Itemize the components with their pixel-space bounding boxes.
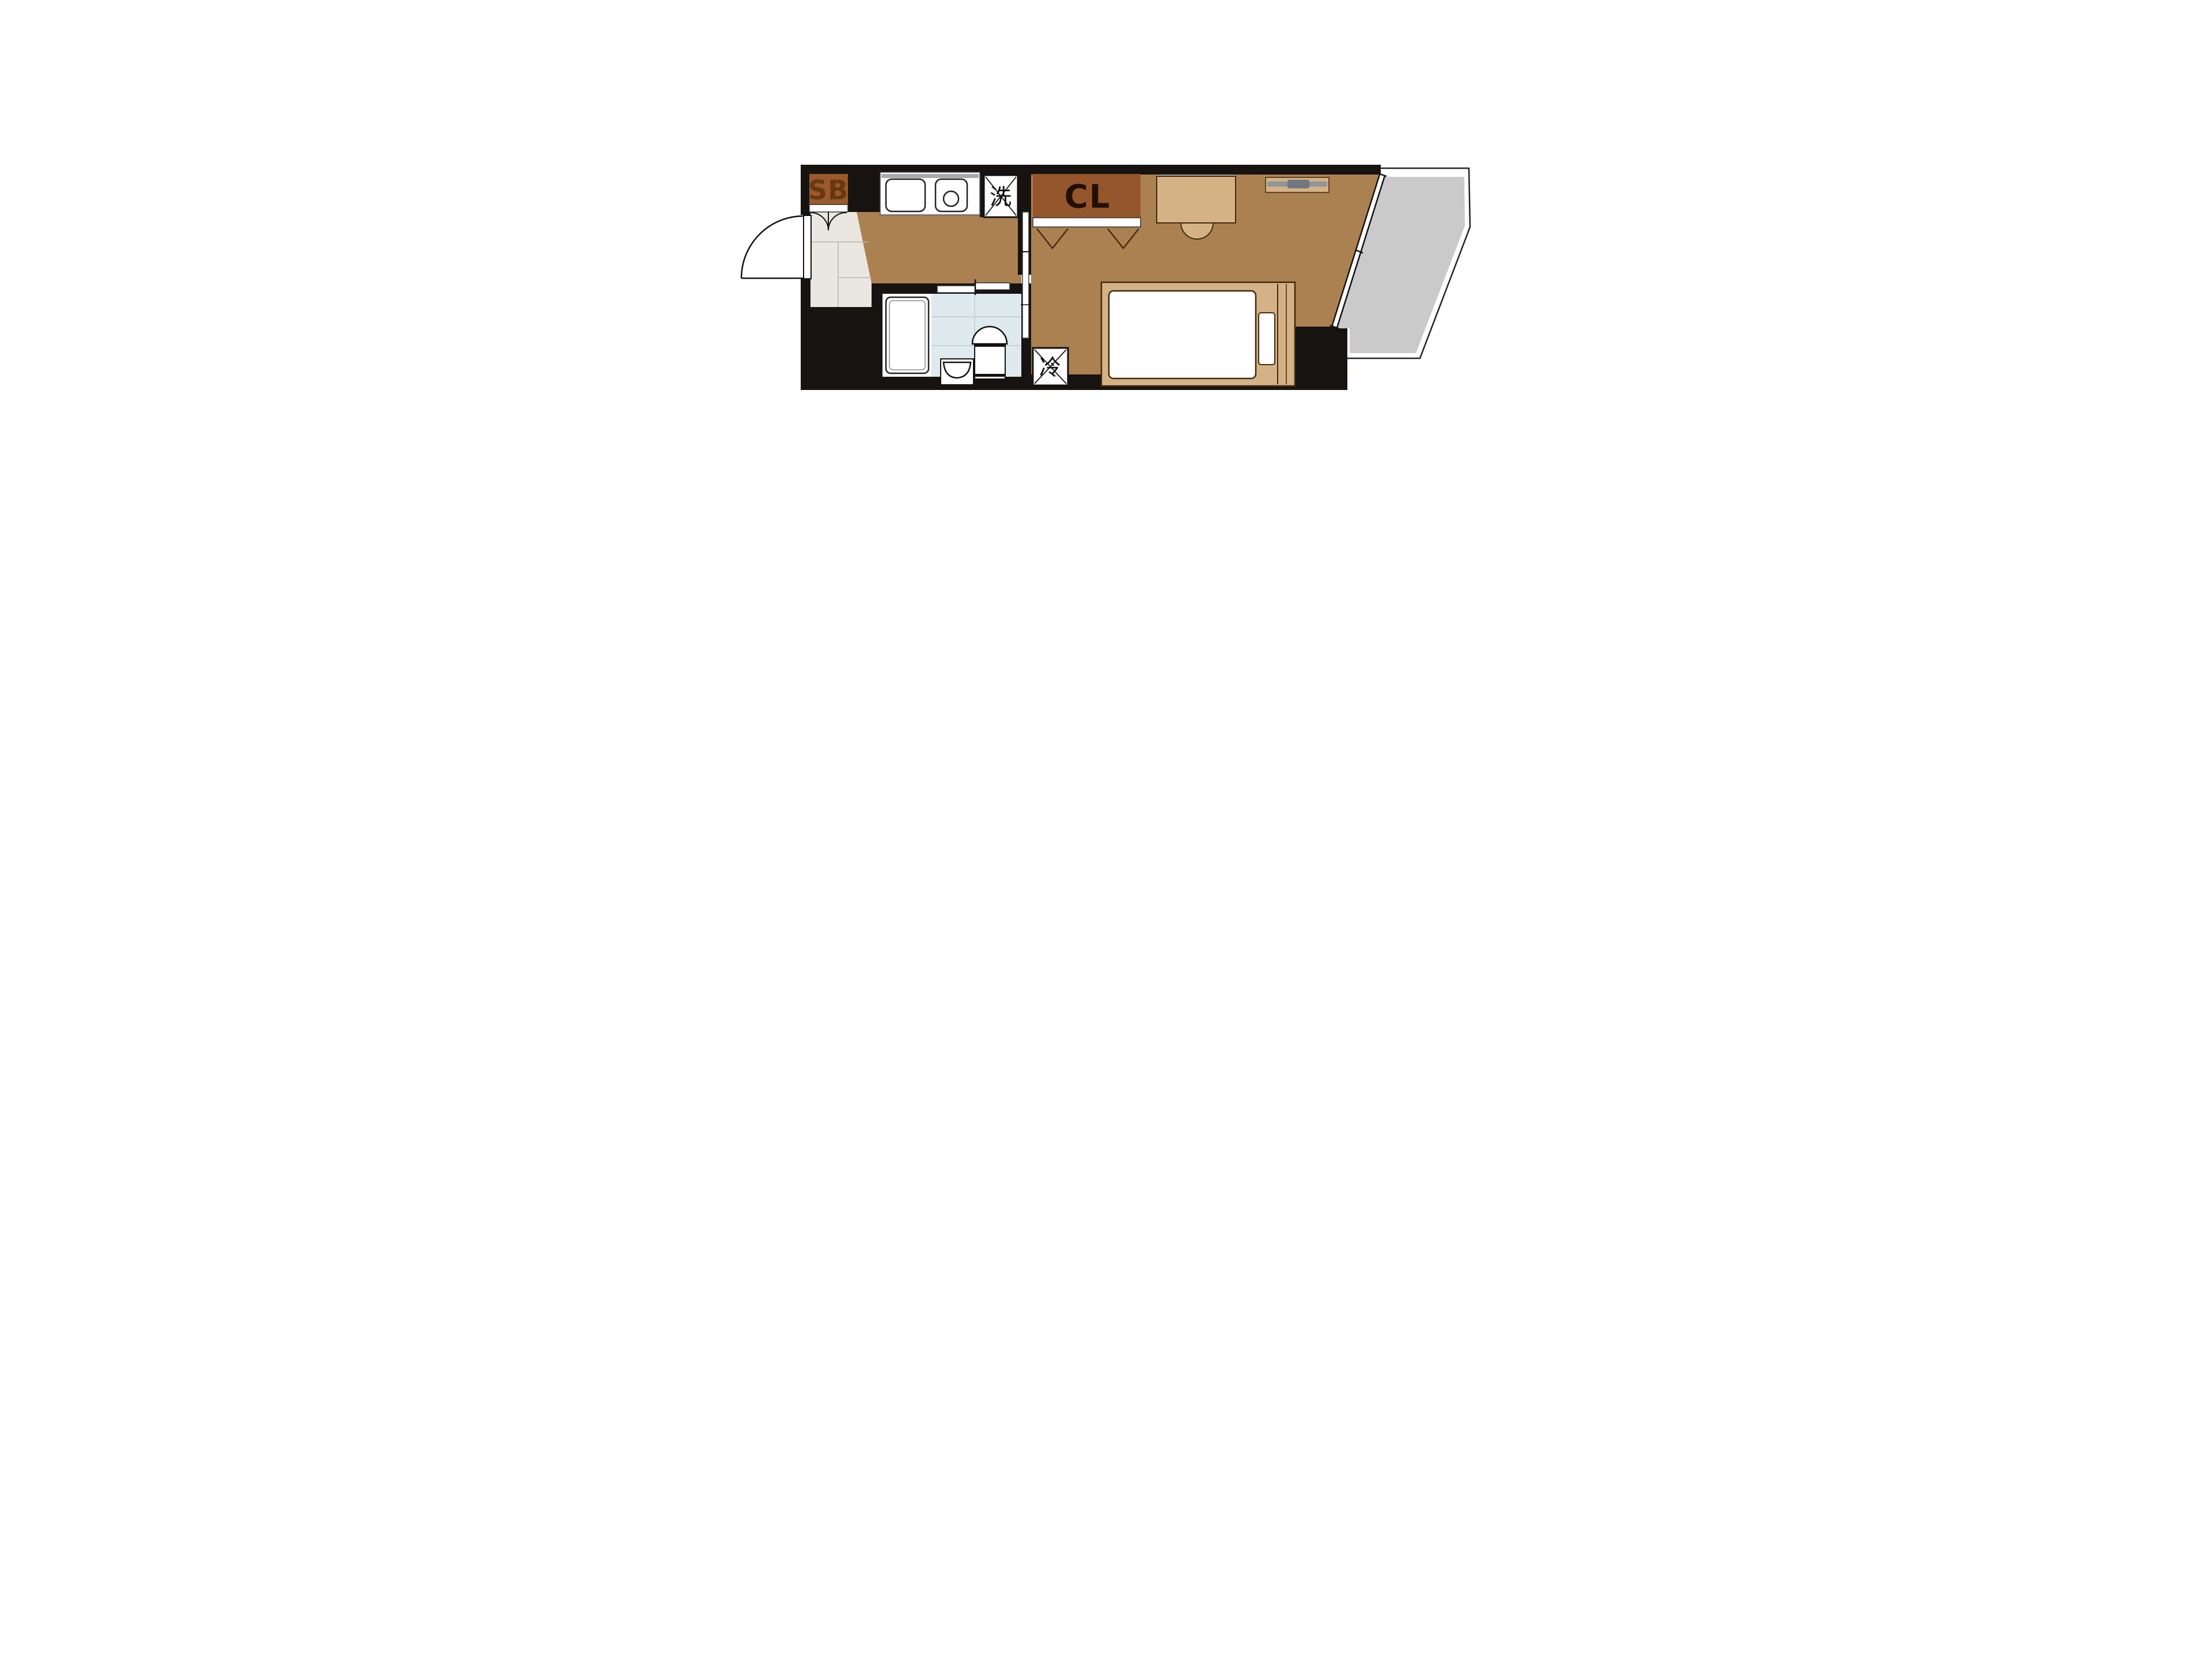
- floor-plan-canvas: 洗 SB CL 冷: [737, 0, 1475, 553]
- entry-door-swing-arc: [741, 216, 804, 278]
- bed-mattress: [1109, 291, 1256, 378]
- left-outer-wall-lower: [801, 279, 810, 309]
- wall-gap-sb-kitchen: [848, 165, 880, 212]
- kitchen-sink: [886, 179, 925, 211]
- bathtub: [886, 297, 929, 373]
- closet-front-band: [1033, 218, 1141, 227]
- bottom-right-wall-block: [1294, 327, 1347, 390]
- toilet-base-line: [975, 374, 1005, 377]
- entry-door: [741, 215, 811, 279]
- bed-pillow: [1259, 313, 1275, 365]
- refrigerator-space: 冷: [1033, 348, 1068, 385]
- bathroom-door-panel-right: [975, 283, 1010, 290]
- toilet-body: [975, 344, 1005, 379]
- closet-label: CL: [1065, 179, 1111, 216]
- kitchen-room-sliding-door: [1021, 212, 1031, 338]
- fridge-label: 冷: [1039, 355, 1061, 380]
- kitchen: [880, 172, 980, 215]
- desk: [1157, 176, 1236, 223]
- unit-bathroom: [882, 279, 1021, 385]
- washing-machine-space: 洗: [984, 175, 1018, 217]
- kitchen-counter-back-edge: [881, 174, 979, 178]
- wall-shelf-slider: [1287, 180, 1309, 188]
- entry-door-leaf: [804, 215, 811, 279]
- toilet-seat-line: [975, 344, 1005, 347]
- sb-counter-band: [809, 204, 848, 212]
- bathroom-door-panel-left: [937, 286, 975, 293]
- sliding-door-leaf: [1022, 212, 1029, 338]
- washer-label: 洗: [990, 184, 1012, 210]
- kitchen-wood-floor: [857, 212, 1021, 283]
- floor-plan-page: 洗 SB CL 冷: [737, 0, 1475, 553]
- sb-label: SB: [808, 175, 849, 206]
- kitchen-burner-ring: [944, 191, 959, 206]
